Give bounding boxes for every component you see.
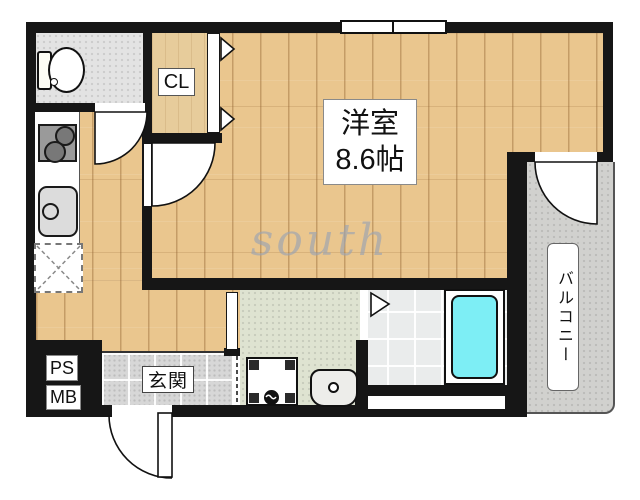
entrance-label: 玄関	[142, 366, 194, 393]
closet-label: CL	[158, 68, 195, 96]
entrance-label-text: 玄関	[148, 366, 188, 393]
watermark-text: south	[251, 215, 389, 266]
balcony-door-arc-icon	[535, 162, 597, 224]
meter-box-label: MB	[46, 385, 81, 410]
main-room-door-arc-icon	[152, 143, 215, 206]
drain-wave-icon	[266, 395, 276, 399]
toilet-door-arc-icon	[95, 112, 147, 164]
closet-label-text: CL	[164, 71, 190, 94]
entrance-door-leaf-icon	[158, 413, 172, 477]
main-room-name: 洋室	[341, 106, 399, 142]
pipe-space-label: PS	[46, 355, 78, 381]
closet-door-triangle-icon	[221, 108, 234, 130]
balcony-label: バルコニー	[547, 243, 579, 391]
watermark: south	[200, 212, 440, 268]
bathroom-door-triangle-icon	[371, 293, 389, 316]
pipe-space-text: PS	[50, 358, 74, 379]
main-room-size: 8.6帖	[335, 142, 404, 178]
balcony-label-text: バルコニー	[551, 270, 575, 365]
meter-box-text: MB	[50, 387, 77, 408]
floor-plan: 洋室 8.6帖 CL バルコニー 玄関 PS MB south	[0, 0, 640, 500]
main-room-label: 洋室 8.6帖	[323, 99, 417, 185]
closet-door-triangle-icon	[221, 38, 234, 60]
